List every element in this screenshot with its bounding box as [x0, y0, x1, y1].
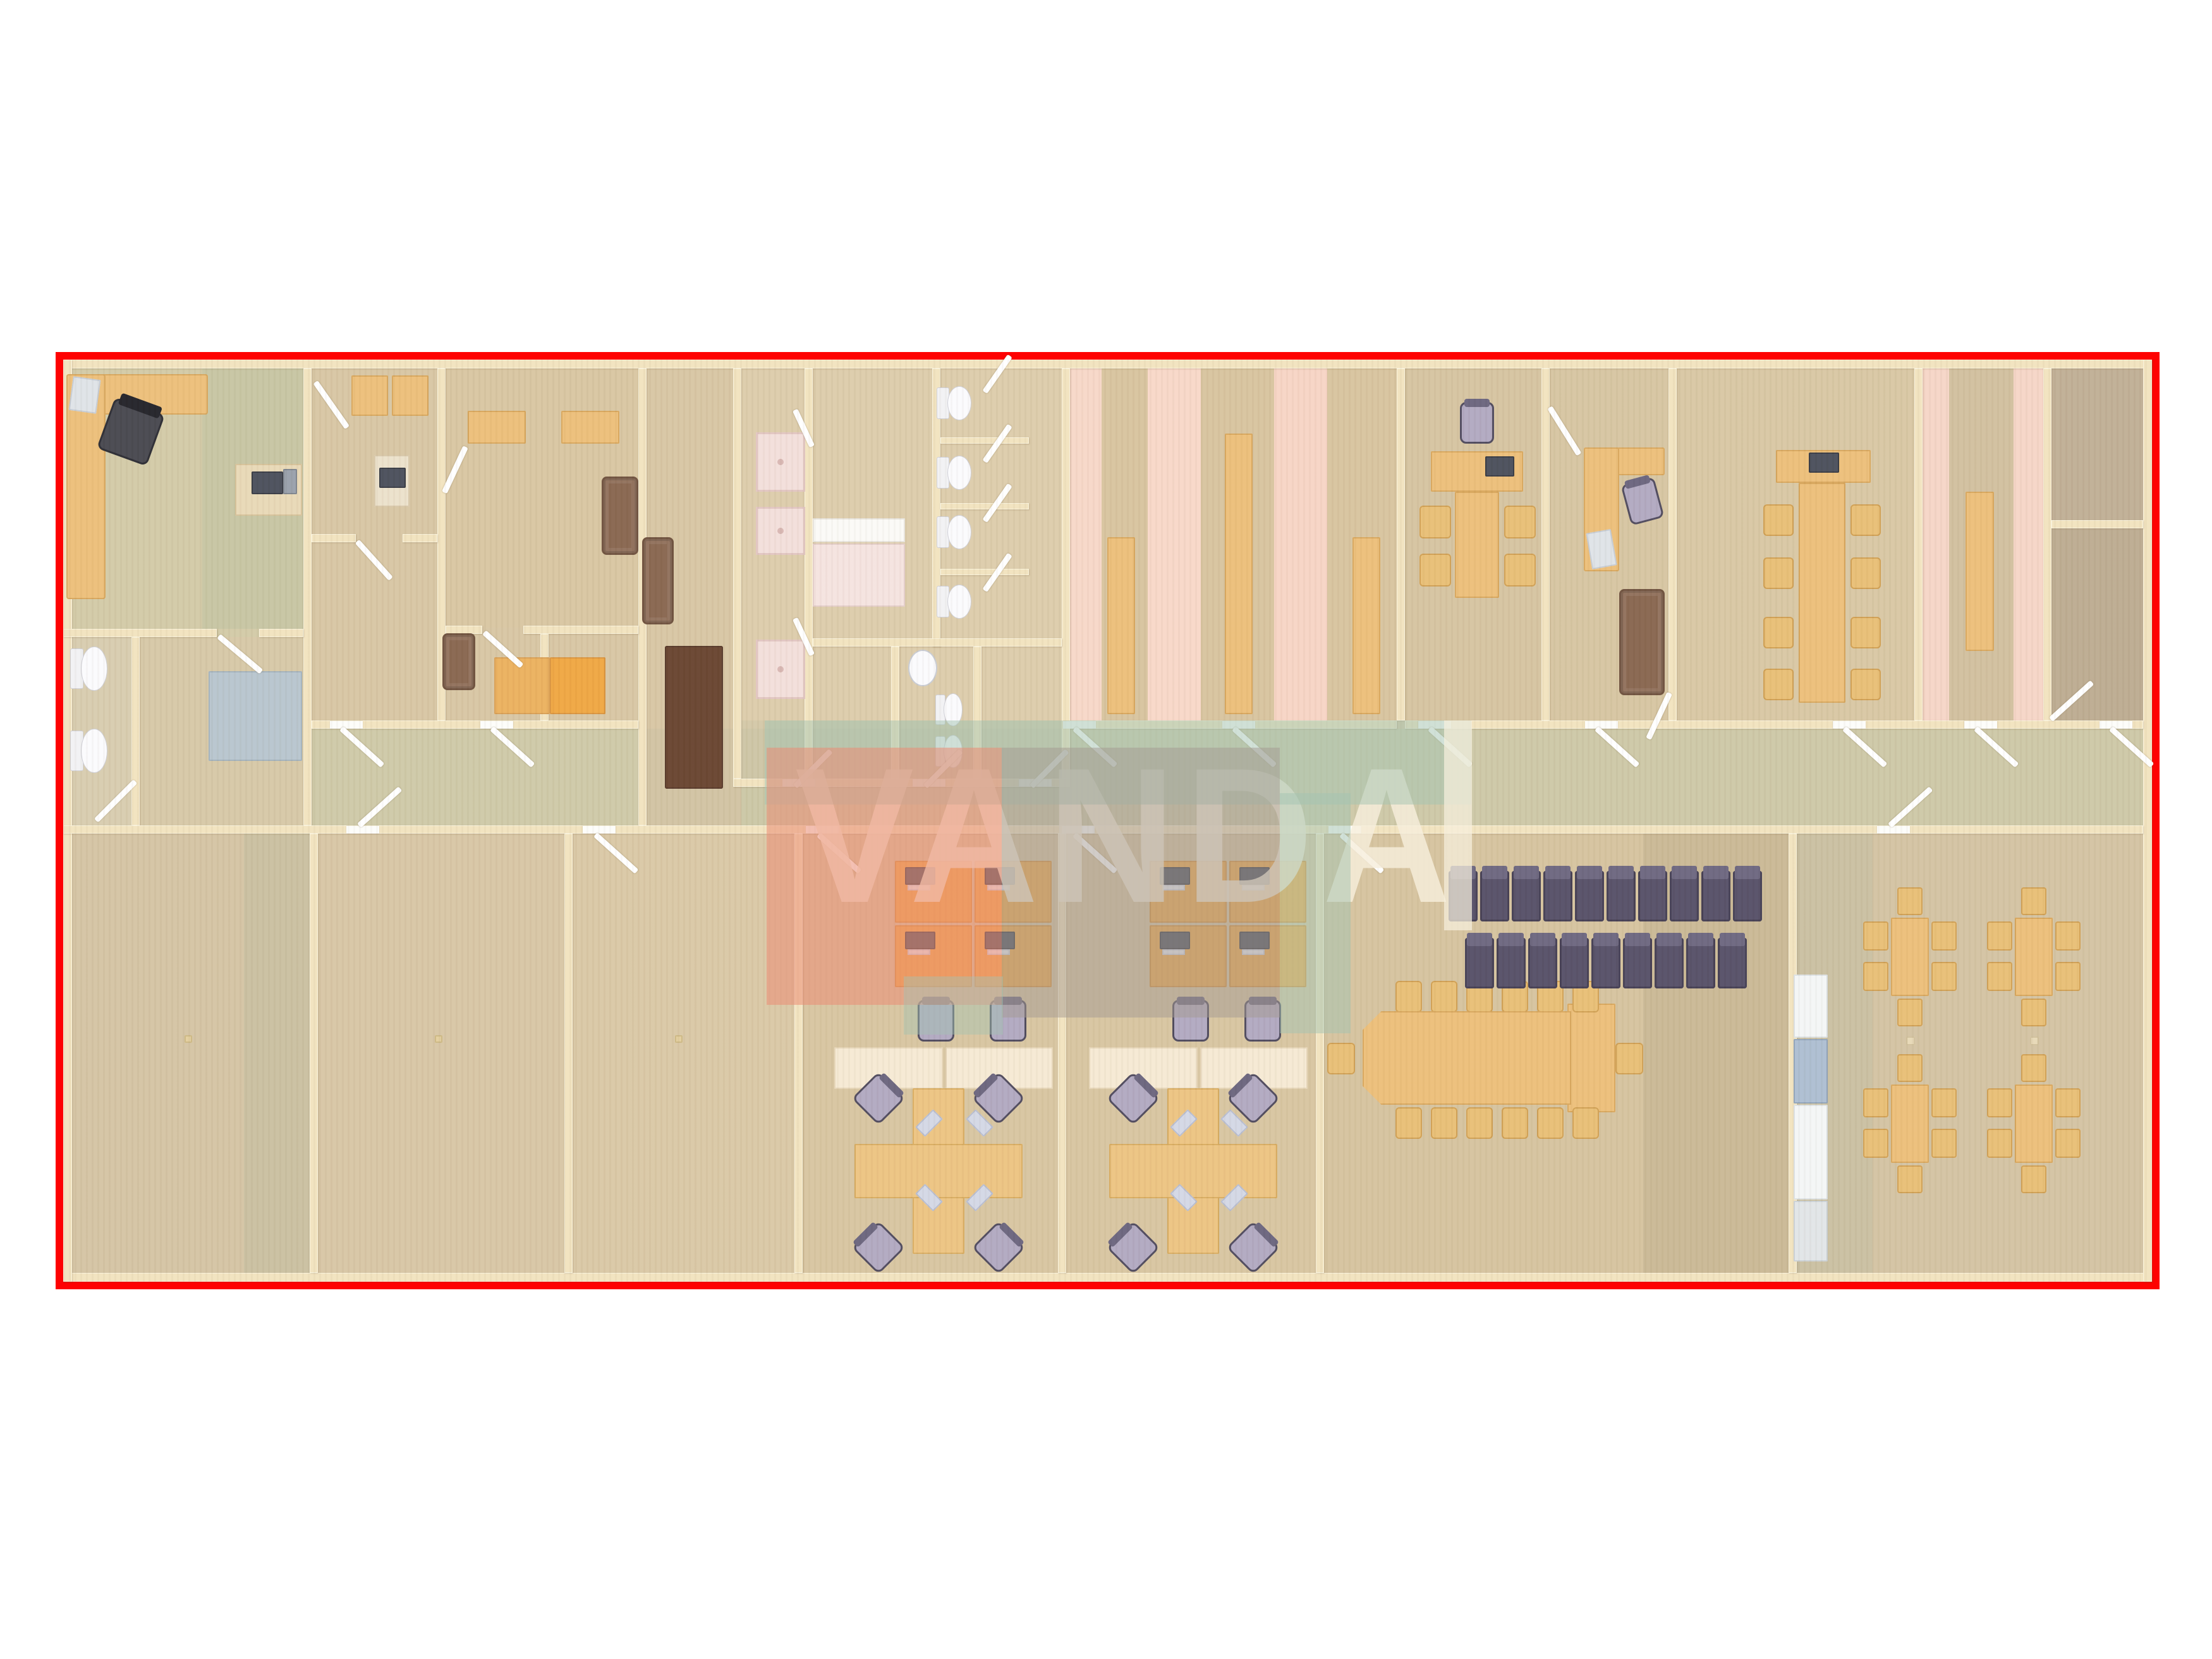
wall [891, 647, 899, 779]
break-chair [1863, 962, 1888, 991]
papers [68, 376, 100, 414]
wall [310, 834, 318, 1273]
floor-tint [2043, 368, 2143, 720]
armchair-back [1672, 866, 1697, 879]
door-jamb [1964, 721, 1997, 729]
floor-region [2014, 368, 2043, 720]
kitchen-counter [1794, 975, 1828, 1038]
cross-desk [1109, 1144, 1277, 1198]
wall [940, 437, 1029, 444]
break-chair [1987, 962, 2012, 991]
conf-chair [1572, 1107, 1599, 1139]
door-jamb [1833, 721, 1866, 729]
break-chair [1897, 887, 1923, 915]
break-table [1891, 918, 1929, 996]
wall [733, 368, 741, 779]
door-jamb [1877, 826, 1910, 834]
break-chair [1863, 1129, 1888, 1158]
wall [2051, 520, 2143, 528]
waiting-armchair [1686, 938, 1715, 988]
sofa [602, 477, 638, 555]
wall [1062, 368, 1070, 779]
keyboard [1162, 949, 1185, 955]
door-jamb [480, 721, 513, 729]
kitchen-cabinet [1794, 1201, 1828, 1261]
reception-table [209, 671, 302, 761]
wall [940, 503, 1029, 509]
break-chair [2055, 962, 2081, 991]
armchair-back [1608, 866, 1634, 879]
keyboard [1162, 885, 1185, 890]
break-chair [1931, 1129, 1957, 1158]
bench [1966, 492, 1994, 651]
armchair-back [1514, 866, 1539, 879]
floor-region [1923, 368, 1949, 720]
waiting-armchair [1575, 871, 1604, 921]
shower-tray [756, 640, 805, 699]
wall [2043, 368, 2051, 720]
waiting-armchair [1670, 871, 1699, 921]
task-chair [1244, 1000, 1281, 1042]
wall [564, 834, 573, 1273]
monitor [1239, 867, 1270, 885]
door-jamb [583, 826, 616, 834]
floor-dot [675, 1035, 683, 1043]
table [550, 657, 605, 714]
monitor [1160, 867, 1190, 885]
door-jamb [346, 826, 379, 834]
bench [1107, 537, 1135, 714]
break-chair [2021, 1054, 2046, 1082]
floor-dot [2030, 1036, 2039, 1045]
plan-frame: VANDA [56, 352, 2160, 1289]
bath-mat [813, 544, 905, 607]
task-chair [1460, 402, 1494, 444]
keyboard [1242, 885, 1265, 890]
waiting-armchair [1623, 938, 1652, 988]
task-chair-back [994, 997, 1022, 1005]
floor-region [318, 834, 564, 1273]
monitor [905, 932, 935, 949]
toilet-bowl [947, 515, 971, 549]
cross-desk [854, 1144, 1023, 1198]
break-chair [2021, 1165, 2046, 1193]
waiting-armchair [1733, 871, 1762, 921]
shower-tray [756, 432, 805, 492]
armchair-back [1703, 866, 1729, 879]
break-table [2015, 1085, 2053, 1163]
toilet-bowl [944, 693, 963, 726]
armchair-back [1467, 933, 1492, 946]
floor-region [573, 834, 794, 1273]
wall [523, 626, 638, 634]
waiting-armchair [1512, 871, 1541, 921]
waiting-armchair [1497, 938, 1526, 988]
armchair-back [1688, 933, 1713, 946]
sofa [642, 537, 674, 624]
shower-drain [777, 459, 784, 465]
waiting-armchair [1528, 938, 1557, 988]
toilet-bowl [81, 647, 107, 691]
floor-dot [1906, 1036, 1915, 1045]
break-chair [1863, 1088, 1888, 1117]
break-chair [1897, 1054, 1923, 1082]
toilet-bowl [947, 585, 971, 619]
shower-tray [756, 507, 805, 555]
conf-desk [1799, 483, 1845, 703]
sink [908, 650, 937, 686]
armchair-back [1720, 933, 1745, 946]
desk [392, 375, 428, 416]
task-chair-back [1177, 997, 1205, 1005]
task-chair-back [922, 997, 950, 1005]
side-chair [1763, 617, 1794, 648]
monitor [1239, 932, 1270, 949]
wall [63, 629, 217, 637]
wall [1541, 368, 1550, 720]
waiting-armchair [1560, 938, 1589, 988]
task-chair [918, 1000, 954, 1042]
conf-chair [1327, 1043, 1355, 1074]
side-chair [1763, 504, 1794, 536]
wall [940, 569, 1029, 575]
conf-chair [1537, 1107, 1564, 1139]
fridge [1794, 1039, 1828, 1103]
conf-chair [1502, 1107, 1528, 1139]
break-chair [1897, 999, 1923, 1026]
wall [1316, 834, 1324, 1273]
shower-drain [777, 528, 784, 534]
wall [63, 1273, 2152, 1282]
monitor [252, 471, 283, 494]
armchair-back [1656, 933, 1682, 946]
toilet-bowl [947, 456, 971, 490]
plan-canvas [63, 360, 2152, 1282]
desk [351, 375, 388, 416]
floor-region [1070, 368, 1102, 779]
task-chair-back [1249, 997, 1277, 1005]
wall [813, 638, 1062, 647]
keyboard [908, 885, 930, 890]
wall [303, 368, 312, 825]
desk [561, 411, 619, 444]
wall [312, 534, 356, 542]
side-chair [1504, 506, 1536, 538]
floor-tint [244, 834, 310, 1273]
door-jamb [1062, 826, 1095, 834]
floor-plan-page: VANDA [0, 0, 2212, 1659]
kitchen-counter [1794, 1105, 1828, 1200]
monitor [1809, 453, 1839, 473]
break-chair [2055, 921, 2081, 951]
side-chair [1419, 554, 1451, 586]
armchair-back [1625, 933, 1650, 946]
sofa [1619, 589, 1665, 695]
waiting-armchair [1638, 871, 1667, 921]
floor-region [1274, 368, 1327, 779]
break-chair [1987, 1129, 2012, 1158]
break-chair [1931, 1088, 1957, 1117]
wall [1058, 834, 1066, 1273]
monitor [985, 867, 1015, 885]
break-chair [2021, 999, 2046, 1026]
keyboard [987, 949, 1010, 955]
waiting-armchair [1655, 938, 1684, 988]
monitor [905, 867, 935, 885]
wall [2143, 360, 2152, 1282]
side-chair [1850, 617, 1881, 648]
waiting-armchair [1591, 938, 1620, 988]
toilet-bowl [81, 729, 107, 774]
table [494, 657, 550, 714]
bench [1352, 537, 1380, 714]
armchair-back [1577, 866, 1602, 879]
armchair-back [1593, 933, 1619, 946]
conf-chair [1395, 1107, 1422, 1139]
armchair-back [1562, 933, 1587, 946]
side-chair [1850, 504, 1881, 536]
conf-chair [1431, 1107, 1457, 1139]
door-jamb [1585, 721, 1618, 729]
break-chair [2021, 887, 2046, 915]
monitor [1485, 456, 1514, 477]
floor-region [1148, 368, 1201, 779]
waiting-armchair [1449, 871, 1478, 921]
wall [259, 629, 303, 637]
toilet [935, 512, 972, 551]
armchair-back [1482, 866, 1507, 879]
monitor [985, 932, 1015, 949]
meeting-desk [1455, 492, 1499, 598]
waiting-armchair [1480, 871, 1509, 921]
monitor [379, 468, 406, 488]
floor-dot [185, 1035, 192, 1043]
armchair-back [1530, 933, 1555, 946]
door-jamb [1222, 721, 1255, 729]
conf-table-end [1567, 1004, 1615, 1112]
waiting-armchair [1607, 871, 1636, 921]
side-chair [1850, 557, 1881, 589]
task-chair-back [1464, 399, 1490, 407]
wall [1397, 368, 1405, 720]
toilet [935, 383, 972, 422]
toilet [934, 690, 963, 728]
break-chair [1931, 921, 1957, 951]
toilet [935, 453, 972, 492]
break-chair [1987, 1088, 2012, 1117]
door-jamb [330, 721, 363, 729]
keyboard [987, 885, 1010, 890]
armchair-back [1450, 866, 1476, 879]
desk [468, 411, 526, 444]
conference-table [1363, 1011, 1571, 1105]
side-chair [1419, 506, 1451, 538]
break-chair [1897, 1165, 1923, 1193]
break-chair [1931, 962, 1957, 991]
task-chair [1172, 1000, 1209, 1042]
wall [131, 637, 140, 825]
side-chair [1763, 669, 1794, 700]
conf-chair [1466, 1107, 1493, 1139]
door-jamb [806, 826, 839, 834]
break-chair [2055, 1129, 2081, 1158]
conf-chair [1615, 1043, 1643, 1074]
break-chair [1863, 921, 1888, 951]
floor-dot [435, 1035, 442, 1043]
break-chair [2055, 1088, 2081, 1117]
wall [973, 647, 981, 779]
shower-drain [777, 666, 784, 672]
wall [1668, 368, 1677, 720]
wall [1914, 368, 1923, 720]
toilet [935, 581, 972, 621]
sofa [442, 633, 475, 690]
pc-tower [283, 469, 297, 494]
keyboard [908, 949, 930, 955]
door-jamb [1063, 721, 1096, 729]
bench [1225, 434, 1253, 714]
keyboard [1242, 949, 1265, 955]
door-jamb [2100, 721, 2132, 729]
side-chair [1850, 669, 1881, 700]
door-jamb [1328, 826, 1361, 834]
bath-ledge [813, 518, 905, 542]
armchair-back [1498, 933, 1524, 946]
conf-chair [1395, 981, 1422, 1012]
wall [1405, 720, 2143, 729]
floor-tint [312, 729, 2143, 825]
break-table [2015, 918, 2053, 996]
toilet [68, 642, 109, 694]
waiting-armchair [1465, 938, 1494, 988]
door-jamb [1418, 721, 1451, 729]
armchair-back [1640, 866, 1665, 879]
wall [63, 360, 2152, 368]
break-chair [1987, 921, 2012, 951]
wall [403, 534, 437, 542]
break-table [1891, 1085, 1929, 1163]
wall [794, 834, 803, 1273]
conf-chair [1431, 981, 1457, 1012]
armchair-back [1735, 866, 1760, 879]
side-chair [1763, 557, 1794, 589]
armchair-back [1545, 866, 1571, 879]
side-chair [1504, 554, 1536, 586]
floor-region [1677, 368, 1914, 720]
waiting-armchair [1701, 871, 1730, 921]
monitor [1160, 932, 1190, 949]
toilet [68, 724, 109, 776]
wardrobe [665, 646, 723, 789]
task-chair [990, 1000, 1026, 1042]
toilet-bowl [947, 386, 971, 420]
waiting-armchair [1718, 938, 1747, 988]
waiting-armchair [1543, 871, 1572, 921]
